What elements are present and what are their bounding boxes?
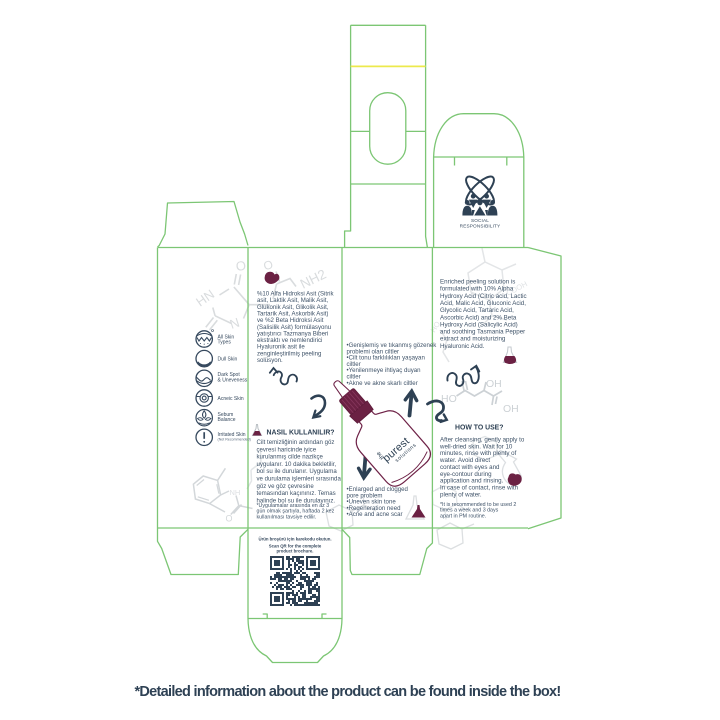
svg-text:OH: OH [503, 403, 519, 415]
svg-text:HOW TO USE?: HOW TO USE? [455, 425, 504, 432]
svg-text:product brochure.: product brochure. [276, 549, 313, 554]
svg-text:Ürün broşürü için karekodu oku: Ürün broşürü için karekodu okutun. [258, 537, 331, 542]
svg-text:O: O [235, 258, 247, 274]
svg-text:O: O [226, 514, 233, 524]
svg-text:*Detailed information about th: *Detailed information about the product … [134, 684, 560, 700]
svg-text:Types: Types [218, 340, 232, 346]
svg-text:RESPONSIBILITY: RESPONSIBILITY [460, 224, 501, 229]
svg-text:& Uneveness: & Uneveness [218, 378, 248, 384]
svg-text:OH: OH [486, 378, 502, 390]
svg-text:(Not Recommended): (Not Recommended) [218, 437, 251, 441]
svg-text:NH: NH [230, 488, 241, 497]
svg-text:Acneic Skin: Acneic Skin [218, 396, 244, 402]
svg-text:SOCIAL: SOCIAL [471, 218, 489, 223]
svg-text:Dull Skin: Dull Skin [218, 356, 238, 362]
svg-text:Balance: Balance [218, 417, 236, 423]
svg-text:NASIL KULLANILIR?: NASIL KULLANILIR? [267, 430, 335, 437]
